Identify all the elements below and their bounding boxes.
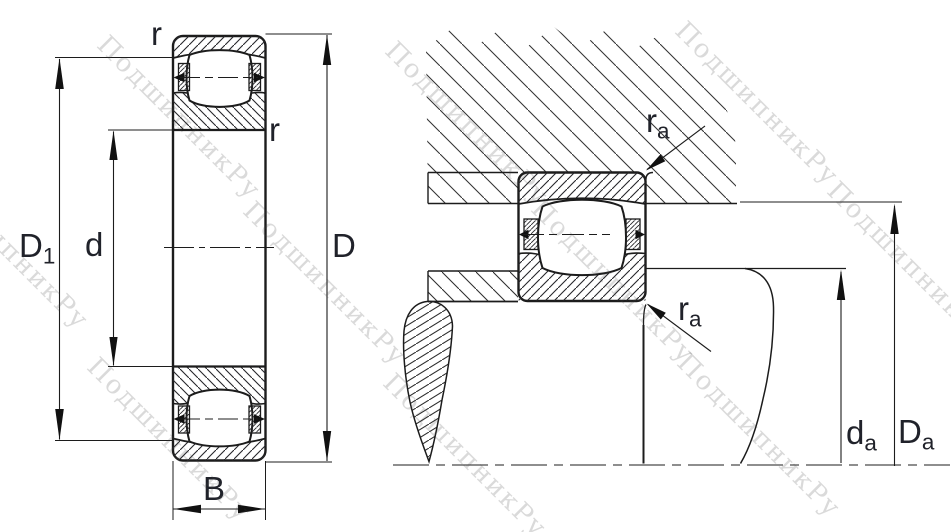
right-view-mounting-section [393,20,950,466]
label-r-top: r [151,17,162,50]
label-ra-top: ra [646,104,669,143]
shaft-abutment-band [428,271,518,302]
shaft-contour [741,269,774,464]
barrel-roller-bottom [187,390,253,447]
label-D: D [332,229,356,262]
label-B: B [203,472,225,505]
label-ra-bottom: ra [678,292,701,331]
label-r-inner: r [269,113,280,146]
shaft-break [404,301,453,461]
label-da: da [846,416,877,455]
label-Da: Da [898,415,934,454]
drawing-canvas [0,0,951,532]
shaft-fillet [644,305,647,326]
mounted-bearing [519,173,646,302]
left-view-bearing-section [55,34,332,520]
label-D1: D1 [19,229,55,268]
dim-D [266,34,333,462]
dim-Da [740,202,902,466]
barrel-roller-top [187,50,253,107]
barrel-roller [538,200,626,275]
label-d: d [85,228,103,261]
dim-d [108,130,173,367]
bearing-drawing: r r D1 d D B ra ra da Da ПодшипникРу Под… [0,0,951,532]
dim-da [837,270,845,464]
